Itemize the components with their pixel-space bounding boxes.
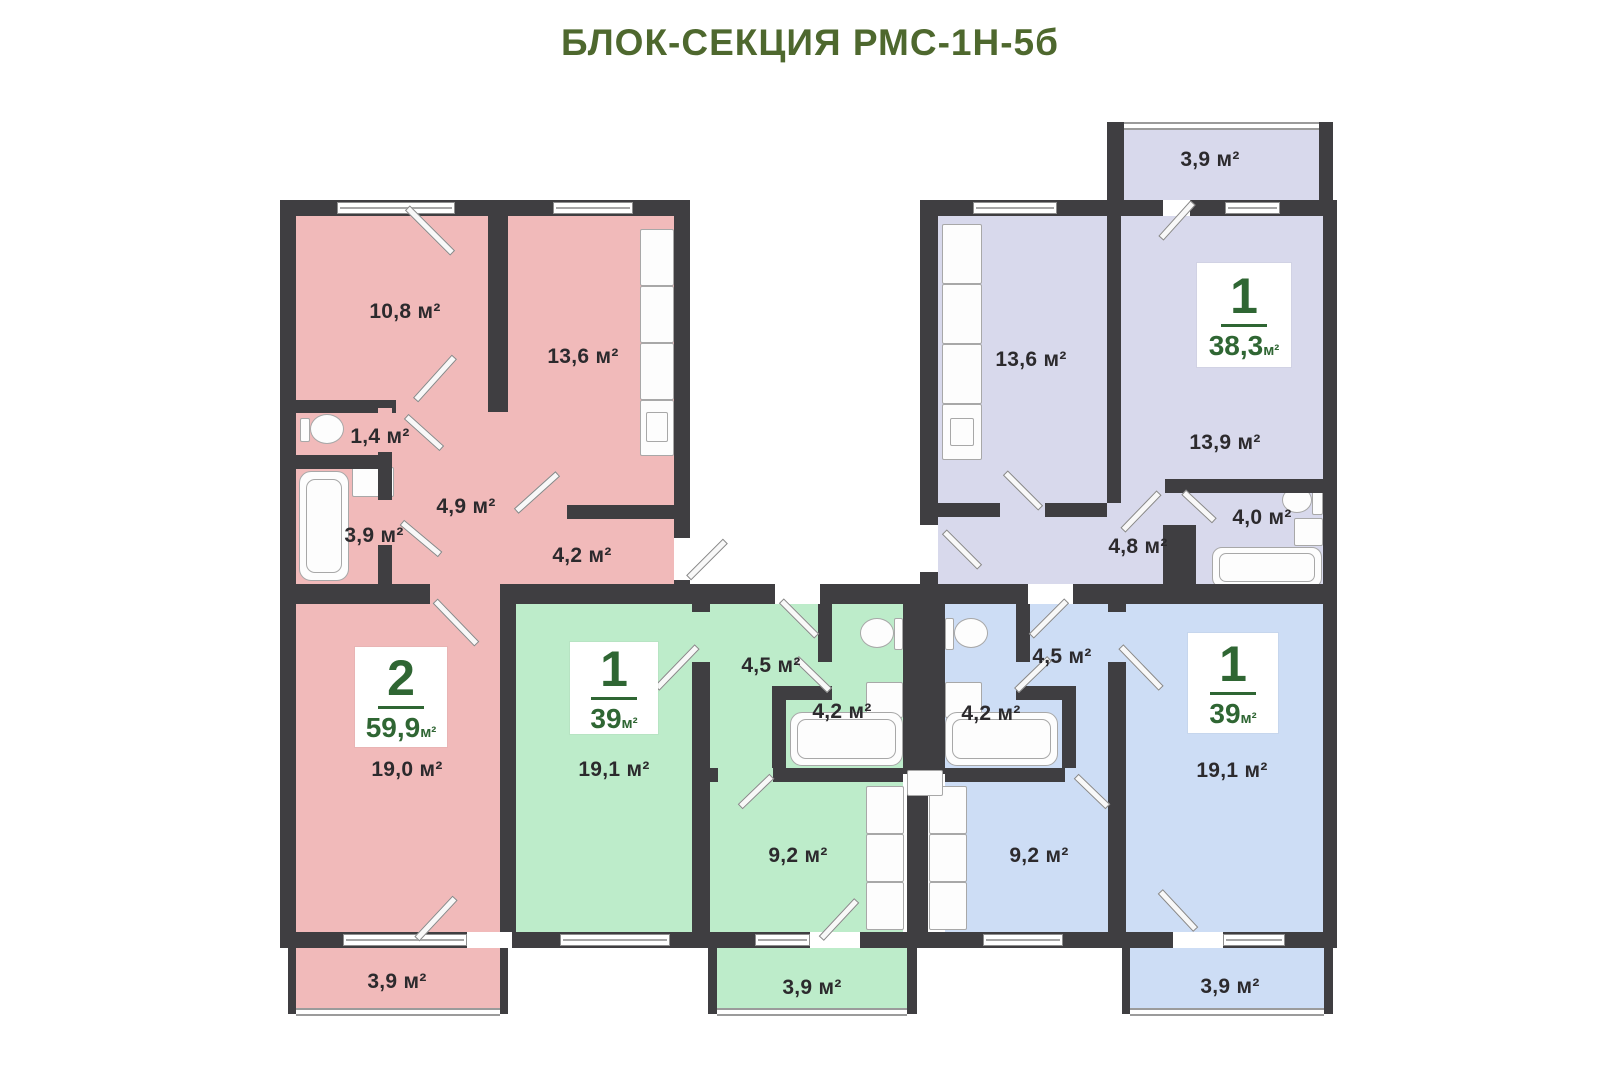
window [983, 934, 1063, 946]
apartment-badge-blue: 1 39м² [1188, 633, 1278, 733]
window [337, 202, 455, 214]
balcony-door-opening [810, 932, 860, 948]
badge-room-count: 1 [600, 644, 628, 694]
room-area-label: 19,1 м² [578, 758, 649, 782]
wall [1062, 700, 1076, 768]
badge-area-value: 39 [1209, 700, 1240, 728]
wall [1107, 216, 1121, 503]
balcony-door-opening [467, 932, 512, 948]
badge-area-unit: м² [1263, 342, 1279, 360]
apartment-badge-lavender: 1 38,3м² [1197, 263, 1291, 367]
balcony-wall [1122, 948, 1130, 1014]
badge-area-unit: м² [1241, 710, 1257, 728]
badge-room-count: 2 [387, 653, 415, 703]
room-area-label: 3,9 м² [782, 976, 841, 1000]
toilet-tank [300, 418, 310, 442]
room-area-label: 19,1 м² [1196, 759, 1267, 783]
toilet-tank [894, 618, 903, 650]
window [343, 934, 467, 946]
badge-area-value: 59,9 [366, 714, 421, 742]
room-area-label: 3,9 м² [344, 524, 403, 548]
room-area-label: 4,0 м² [1232, 506, 1291, 530]
kitchen-counter [942, 284, 982, 344]
sink-basin [950, 418, 974, 446]
kitchen-counter [866, 786, 904, 834]
door-opening [920, 525, 938, 572]
wall [903, 584, 945, 774]
balcony-door-opening [1173, 932, 1223, 948]
room-area-label: 10,8 м² [369, 300, 440, 324]
bathtub-inner [797, 719, 896, 759]
kitchen-counter [929, 834, 967, 882]
bathtub-inner [306, 479, 342, 573]
room-area-label: 4,2 м² [552, 544, 611, 568]
bathtub-inner [1219, 553, 1315, 582]
utility-shaft [907, 770, 943, 796]
badge-room-count: 1 [1230, 271, 1258, 321]
room-area-label: 9,2 м² [768, 844, 827, 868]
kitchen-counter [640, 229, 674, 286]
badge-divider [378, 706, 424, 709]
badge-divider [1210, 692, 1256, 695]
room-area-label: 9,2 м² [1009, 844, 1068, 868]
toilet-tank [945, 618, 954, 650]
wall [296, 455, 392, 469]
page-title: БЛОК-СЕКЦИЯ РМС-1Н-5б [0, 22, 1620, 64]
door-opening [1121, 479, 1165, 493]
room-area-label: 13,6 м² [547, 345, 618, 369]
badge-divider [591, 697, 637, 700]
room-area-label: 19,0 м² [371, 758, 442, 782]
balcony-wall [708, 948, 717, 1014]
room-area-label: 13,6 м² [995, 348, 1066, 372]
badge-area-unit: м² [622, 715, 638, 733]
balcony-glazing [296, 1008, 500, 1016]
badge-area-value: 39 [590, 705, 621, 733]
window [973, 202, 1057, 214]
wall [772, 700, 786, 768]
toilet-icon [860, 618, 894, 648]
wall [280, 200, 296, 948]
wall [1323, 200, 1337, 948]
wall [488, 216, 508, 412]
kitchen-counter [942, 224, 982, 284]
wall [1163, 525, 1196, 584]
door-opening [692, 612, 710, 662]
window [553, 202, 633, 214]
window [560, 934, 670, 946]
room-area-label: 4,8 м² [1108, 535, 1167, 559]
wall [907, 774, 928, 948]
balcony-wall [1319, 122, 1333, 200]
balcony-wall [288, 948, 296, 1014]
balcony-wall [500, 948, 508, 1014]
room-area-label: 4,2 м² [961, 702, 1020, 726]
kitchen-counter [866, 834, 904, 882]
room-area-label: 4,5 м² [1032, 645, 1091, 669]
door [686, 539, 728, 581]
toilet-icon [954, 618, 988, 648]
wall [1016, 686, 1076, 700]
balcony-glazing [1130, 1008, 1324, 1016]
kitchen-counter [640, 343, 674, 400]
apartment-badge-pink: 2 59,9м² [355, 647, 447, 747]
kitchen-counter [929, 882, 967, 930]
floor-plan: БЛОК-СЕКЦИЯ РМС-1Н-5б [0, 0, 1620, 1080]
room-area-label: 4,5 м² [741, 654, 800, 678]
wall [500, 584, 516, 948]
window [1223, 934, 1285, 946]
room-area-label: 4,9 м² [436, 495, 495, 519]
balcony-glazing [717, 1008, 907, 1016]
sink-basin [646, 412, 668, 442]
wall [674, 216, 690, 584]
room-area-label: 4,2 м² [812, 700, 871, 724]
room-area-label: 3,9 м² [1200, 975, 1259, 999]
room-area-label: 3,9 м² [367, 970, 426, 994]
badge-area-value: 38,3 [1209, 332, 1264, 360]
door-opening [1065, 768, 1108, 782]
toilet-icon [310, 414, 344, 444]
kitchen-counter [640, 286, 674, 343]
wall [818, 604, 832, 662]
balcony-wall [1324, 948, 1333, 1014]
window [755, 934, 810, 946]
balcony-glazing [1124, 122, 1319, 130]
kitchen-counter [866, 882, 904, 930]
room-area-label: 13,9 м² [1189, 431, 1260, 455]
kitchen-counter [942, 344, 982, 404]
sink-icon [1294, 518, 1323, 546]
room-area-label: 3,9 м² [1180, 148, 1239, 172]
window [1225, 202, 1280, 214]
room-area-label: 1,4 м² [350, 425, 409, 449]
balcony-wall [1107, 122, 1124, 200]
badge-area-unit: м² [420, 724, 436, 742]
badge-divider [1221, 324, 1267, 327]
apartment-badge-green: 1 39м² [570, 642, 658, 734]
badge-room-count: 1 [1219, 639, 1247, 689]
wall [567, 505, 674, 519]
balcony-wall [907, 948, 917, 1014]
